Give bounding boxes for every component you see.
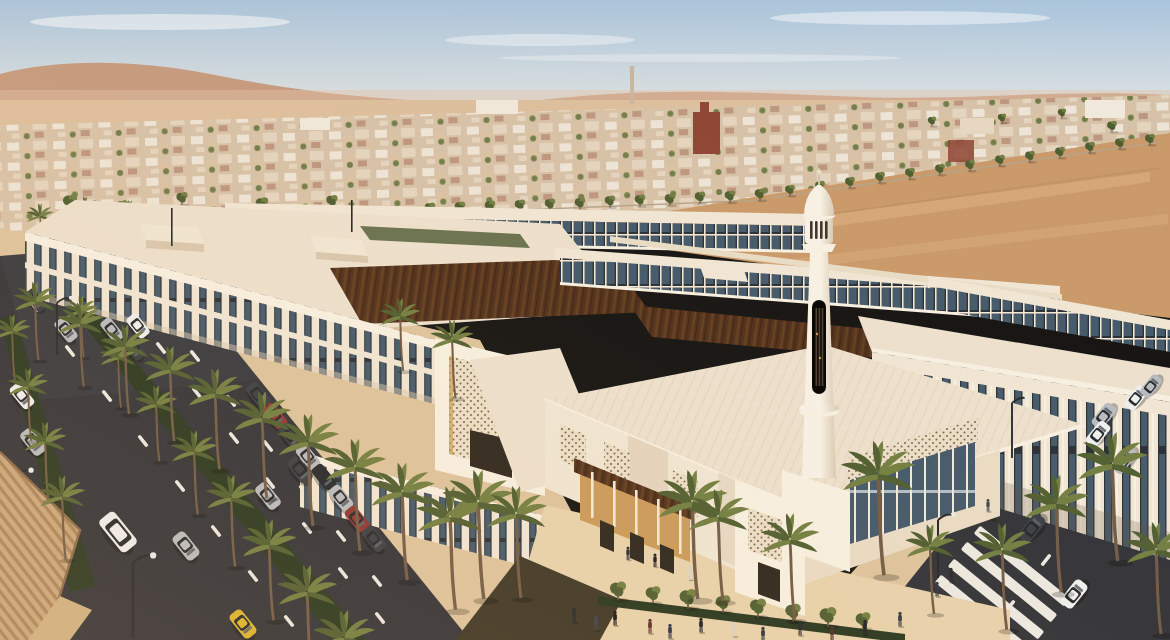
- cloud: [445, 34, 635, 46]
- render-stage: [0, 0, 1170, 640]
- roof-antenna: [351, 200, 353, 232]
- distant-minaret: [630, 70, 634, 104]
- aerial-architectural-render: [0, 0, 1170, 640]
- cloud: [30, 14, 290, 30]
- roof-antenna: [171, 208, 173, 246]
- cloud: [500, 54, 900, 62]
- cloud: [770, 11, 1050, 25]
- minaret-lantern: [805, 216, 833, 244]
